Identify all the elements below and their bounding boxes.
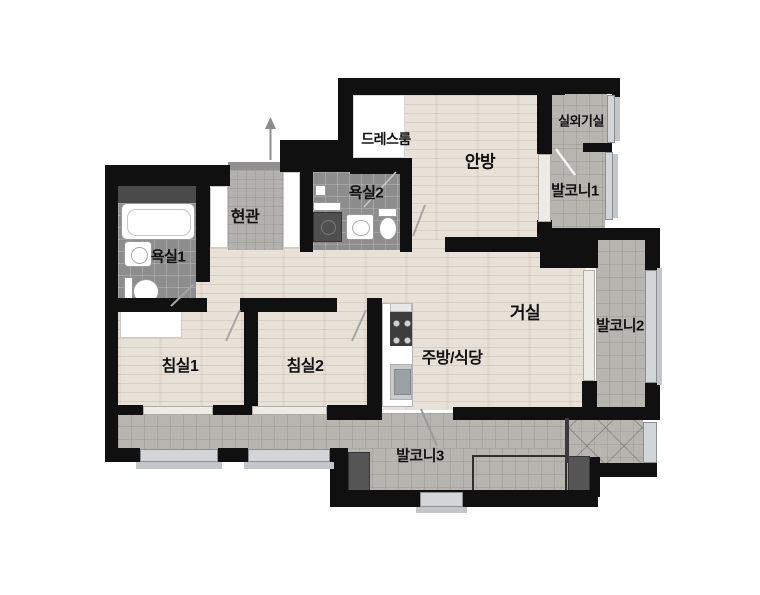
bathroom2-basin-bowl bbox=[352, 220, 370, 236]
washing-machine bbox=[313, 212, 342, 242]
bathroom2-toilet-tank bbox=[378, 208, 397, 217]
floor-plan: 드레스룸안방실외기실발코니1현관욕실2욕실1거실발코니2침실1침실2주방/식당발… bbox=[0, 0, 760, 595]
wall bbox=[196, 186, 210, 282]
label-entrance: 현관 bbox=[231, 203, 259, 227]
door-living-to-balcony2 bbox=[583, 270, 595, 381]
window-sill bbox=[416, 507, 467, 513]
bathroom2-toilet-bowl bbox=[379, 217, 397, 240]
wall bbox=[244, 306, 258, 408]
wall bbox=[118, 405, 143, 415]
window-sill bbox=[615, 97, 620, 141]
window-bedroom1 bbox=[143, 406, 213, 415]
wall bbox=[105, 298, 207, 312]
stove bbox=[390, 312, 412, 346]
bathroom1-shelf bbox=[118, 185, 196, 203]
washing-machine-door bbox=[321, 220, 336, 235]
door-master-to-balcony1 bbox=[538, 154, 551, 222]
wall bbox=[552, 78, 620, 94]
ac-pad-right bbox=[568, 456, 590, 492]
range-hood bbox=[390, 303, 412, 312]
wall bbox=[645, 228, 660, 270]
wall bbox=[327, 405, 369, 420]
window-sill bbox=[657, 268, 662, 385]
label-living-room: 거실 bbox=[510, 299, 540, 324]
wall bbox=[540, 228, 598, 268]
label-kitchen-dining: 주방/식당 bbox=[422, 344, 483, 368]
bathroom2-shower-control bbox=[315, 185, 326, 196]
kitchen-sink bbox=[390, 364, 412, 400]
stove-burners bbox=[390, 312, 412, 346]
wall bbox=[537, 78, 552, 154]
label-bathroom-2: 욕실2 bbox=[349, 182, 383, 203]
label-dress-room: 드레스룸 bbox=[361, 129, 411, 149]
window-bedroom2 bbox=[252, 406, 327, 415]
window-balcony3-mid bbox=[248, 449, 330, 462]
window-balcony3-right bbox=[643, 422, 657, 463]
window-balcony3-bottom bbox=[420, 492, 463, 507]
entrance-door bbox=[228, 162, 283, 170]
label-outdoor-unit-room: 실외기실 bbox=[558, 111, 604, 130]
wall bbox=[598, 463, 657, 477]
wall bbox=[445, 237, 540, 252]
wall bbox=[105, 165, 230, 186]
bathroom1-sink-bowl bbox=[131, 247, 148, 264]
label-bedroom-2: 침실2 bbox=[287, 352, 324, 376]
balcony3-inner-outline bbox=[472, 455, 567, 492]
bathtub-inner bbox=[127, 209, 191, 236]
window-sill bbox=[613, 154, 618, 218]
wall bbox=[213, 405, 252, 415]
entry-arrow-head bbox=[265, 117, 276, 129]
wall bbox=[400, 158, 412, 252]
wall bbox=[218, 448, 248, 462]
window-balcony3-left bbox=[140, 449, 218, 462]
label-balcony-2: 발코니2 bbox=[596, 315, 644, 336]
label-master-bedroom: 안방 bbox=[465, 148, 495, 173]
window-outdoor-unit-room bbox=[607, 95, 615, 143]
window-balcony1 bbox=[605, 152, 613, 220]
ac-pad-left bbox=[348, 452, 370, 493]
wall bbox=[338, 78, 565, 95]
bathtub bbox=[121, 203, 195, 240]
kitchen-sink-basin bbox=[394, 369, 411, 395]
label-bedroom-1: 침실1 bbox=[162, 352, 199, 376]
window-sill bbox=[244, 462, 334, 469]
label-bathroom-1: 욕실1 bbox=[151, 246, 185, 267]
entrance-closet-left bbox=[210, 186, 228, 248]
wall-thin-divider bbox=[565, 418, 569, 463]
bathroom2-basin bbox=[346, 214, 374, 240]
bedroom1-closet bbox=[120, 310, 182, 338]
wall bbox=[453, 407, 660, 420]
wall bbox=[105, 448, 140, 462]
wall bbox=[367, 298, 382, 420]
label-balcony-1: 발코니1 bbox=[551, 180, 599, 201]
wall bbox=[583, 143, 612, 152]
bathroom1-sink bbox=[124, 241, 152, 267]
entrance-closet-right bbox=[283, 172, 300, 248]
wall bbox=[105, 165, 118, 462]
bathroom2-shelf bbox=[313, 202, 341, 211]
label-balcony-3: 발코니3 bbox=[396, 445, 444, 466]
wall bbox=[346, 490, 598, 507]
window-balcony2 bbox=[645, 270, 657, 383]
window-sill bbox=[136, 462, 222, 469]
